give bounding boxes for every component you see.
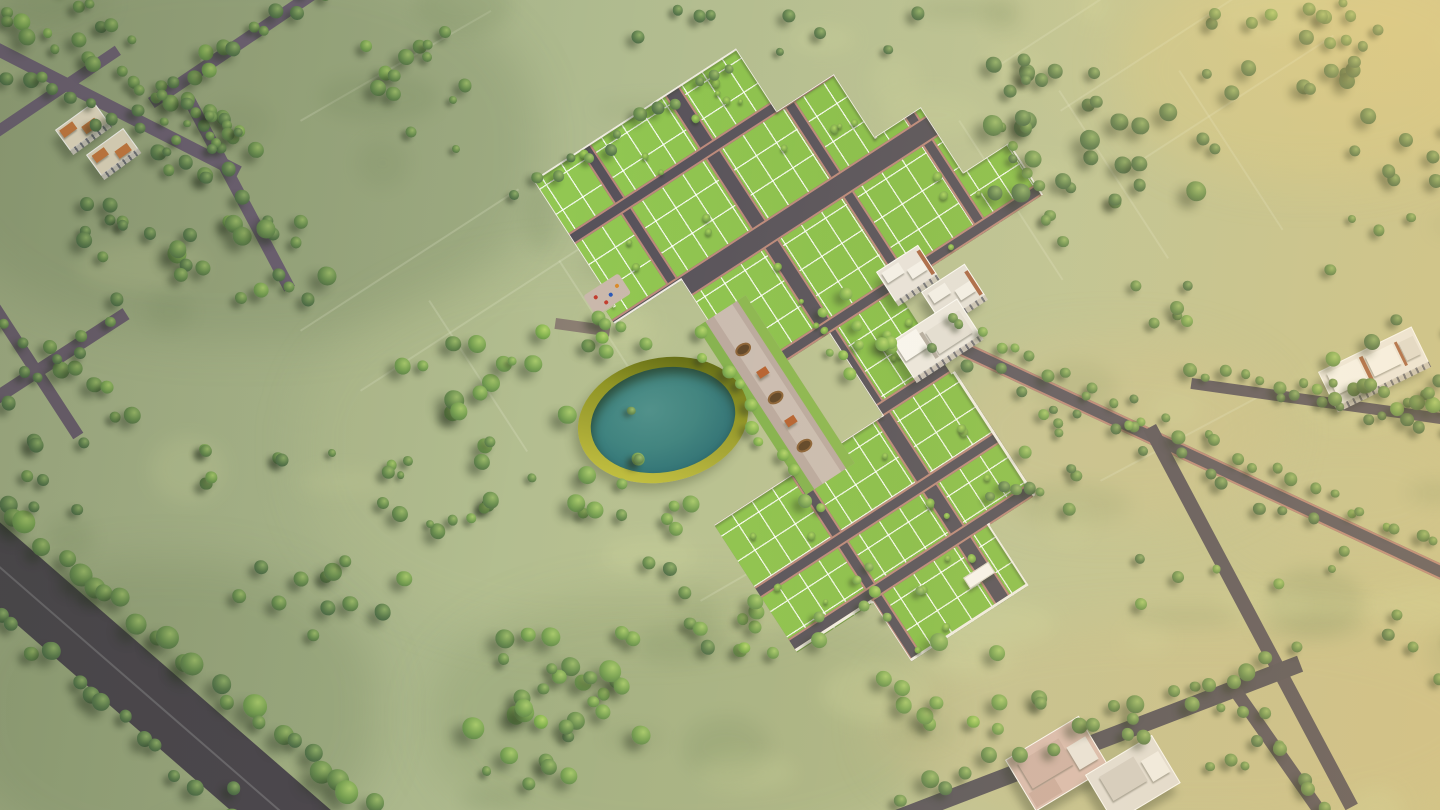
tree — [981, 747, 997, 763]
tree — [1433, 674, 1440, 685]
tree — [1111, 113, 1128, 130]
tree — [406, 127, 417, 138]
tree — [1301, 781, 1315, 795]
tree — [232, 589, 246, 603]
tree — [386, 87, 400, 101]
tree — [144, 227, 156, 239]
tree — [1240, 761, 1249, 770]
tree — [103, 198, 118, 213]
tree — [737, 614, 749, 626]
tree — [21, 471, 33, 483]
tree — [683, 495, 700, 512]
tree — [1023, 351, 1034, 362]
grass-mottle — [1150, 391, 1203, 427]
tree — [32, 538, 50, 556]
tree — [317, 266, 336, 285]
tree — [1212, 564, 1221, 573]
tree — [43, 340, 57, 354]
tree — [954, 319, 964, 329]
tree — [1428, 536, 1437, 545]
tree — [1021, 75, 1031, 85]
play-equipment — [608, 292, 614, 298]
tree — [1406, 213, 1416, 223]
tree — [1132, 117, 1149, 134]
tree — [452, 145, 460, 153]
tree — [335, 780, 359, 804]
tree — [1033, 180, 1045, 192]
tree — [1331, 489, 1340, 498]
tree — [254, 283, 269, 298]
tree — [1272, 462, 1283, 473]
tree — [459, 79, 472, 92]
tree — [1378, 386, 1390, 398]
tree — [81, 197, 95, 211]
tree — [248, 142, 264, 158]
tree — [1328, 392, 1342, 406]
tree — [105, 18, 119, 32]
tree — [1364, 334, 1380, 350]
tree — [1134, 554, 1144, 564]
tree — [1232, 453, 1244, 465]
tree — [1354, 507, 1364, 517]
tree — [1111, 423, 1122, 434]
tree — [119, 710, 132, 723]
tree — [567, 494, 585, 512]
tree — [1382, 629, 1395, 642]
tree — [1274, 381, 1287, 394]
tree — [1425, 397, 1440, 413]
tree — [853, 576, 862, 585]
tree — [248, 21, 259, 32]
tree — [1399, 133, 1413, 147]
tree — [978, 327, 988, 337]
tree — [1255, 376, 1265, 386]
tree — [1019, 446, 1032, 459]
tree — [541, 627, 560, 646]
tree — [859, 601, 870, 612]
tree — [1390, 402, 1404, 416]
tree — [725, 65, 734, 74]
tree — [74, 347, 86, 359]
tree — [110, 412, 121, 423]
grass-mottle — [1433, 216, 1440, 235]
tree — [992, 695, 1007, 710]
tree — [422, 40, 433, 51]
tree — [709, 70, 720, 81]
tree — [19, 366, 31, 378]
tree — [884, 45, 894, 55]
tree — [1251, 735, 1263, 747]
tree — [531, 172, 543, 184]
tree — [663, 562, 677, 576]
tree — [814, 612, 825, 623]
tree — [1138, 446, 1148, 456]
tree — [1011, 747, 1027, 763]
tree — [521, 628, 536, 643]
tree — [1360, 108, 1376, 124]
tree — [782, 10, 795, 23]
tree — [148, 738, 161, 751]
tree — [1114, 156, 1131, 173]
tree — [693, 621, 708, 636]
tree — [1088, 67, 1100, 79]
tree — [883, 613, 892, 622]
tree — [474, 454, 490, 470]
tree — [32, 372, 43, 383]
tree — [1289, 390, 1300, 401]
tree — [1247, 463, 1257, 473]
tree — [894, 680, 910, 696]
tree — [290, 6, 304, 20]
tree — [243, 694, 267, 718]
tree — [1108, 700, 1120, 712]
tree — [95, 584, 112, 601]
tree — [1057, 236, 1069, 248]
tree — [168, 770, 180, 782]
tree — [221, 162, 236, 177]
tree — [222, 127, 235, 140]
tree — [566, 153, 575, 162]
tree — [52, 354, 62, 364]
play-equipment — [603, 300, 609, 306]
tree — [1063, 503, 1076, 516]
tree — [46, 83, 58, 95]
tree — [482, 766, 492, 776]
tree — [1299, 379, 1309, 389]
tree — [101, 380, 114, 393]
tree — [1372, 24, 1383, 35]
tree — [71, 504, 83, 516]
tree — [1004, 85, 1017, 98]
tree — [515, 699, 533, 717]
tree — [1348, 214, 1356, 222]
tree — [508, 356, 517, 365]
tree — [207, 144, 217, 154]
tree — [559, 719, 574, 734]
tree — [449, 96, 457, 104]
tree — [1181, 315, 1193, 327]
tree — [930, 633, 948, 651]
tree — [1413, 421, 1426, 434]
tree — [853, 340, 863, 350]
tree — [171, 136, 181, 146]
tree — [922, 770, 940, 788]
tree — [76, 232, 92, 248]
tree — [865, 563, 874, 572]
tree — [377, 497, 389, 509]
tree — [599, 660, 621, 682]
tree — [160, 117, 169, 126]
tree — [500, 747, 518, 765]
tree — [1265, 9, 1278, 22]
tree — [126, 613, 147, 634]
tree — [156, 626, 178, 648]
tree — [200, 171, 213, 184]
tree — [1205, 762, 1215, 772]
tree — [498, 653, 510, 665]
tree — [596, 331, 609, 344]
tree — [328, 449, 336, 457]
grass-mottle — [913, 0, 1008, 20]
tree — [616, 509, 628, 521]
tree — [1202, 678, 1216, 692]
tree — [1382, 164, 1396, 178]
tree — [1082, 392, 1091, 401]
tree — [198, 45, 213, 60]
tree — [187, 779, 204, 796]
tree — [633, 108, 647, 122]
tree — [987, 186, 1002, 201]
tree — [1041, 370, 1054, 383]
tree — [1185, 697, 1200, 712]
tree — [204, 110, 215, 121]
tree — [1429, 174, 1440, 188]
tree — [75, 331, 87, 343]
roof-block — [1017, 738, 1074, 788]
tree — [670, 99, 681, 110]
tree — [895, 697, 912, 714]
tree — [1329, 379, 1338, 388]
tree — [105, 215, 116, 226]
tree — [495, 629, 514, 648]
roof-block — [59, 121, 77, 138]
tree — [693, 10, 706, 23]
tree — [225, 42, 240, 57]
tree — [87, 98, 97, 108]
tree — [212, 674, 232, 694]
tree — [403, 456, 413, 466]
tree — [105, 113, 118, 126]
grass-mottle — [357, 138, 408, 187]
tree — [777, 449, 789, 461]
tree — [605, 144, 617, 156]
tree — [1183, 280, 1194, 291]
tree — [632, 726, 651, 745]
tree — [269, 3, 284, 18]
tree — [1392, 609, 1403, 620]
tree — [1172, 431, 1185, 444]
roof-block — [1099, 756, 1148, 801]
tree — [227, 781, 241, 795]
tree — [360, 40, 372, 52]
tree — [584, 671, 598, 685]
tree — [651, 102, 664, 115]
tree — [814, 27, 826, 39]
tree — [366, 793, 384, 810]
tree — [1324, 37, 1336, 49]
roof-block — [882, 262, 905, 283]
tree — [616, 478, 627, 489]
tree — [998, 481, 1010, 493]
tree — [340, 556, 352, 568]
tree — [397, 471, 405, 479]
tree — [1325, 352, 1340, 367]
tree — [12, 510, 35, 533]
tree — [599, 318, 611, 330]
aerial-render — [0, 0, 1440, 810]
roof-block — [92, 147, 109, 163]
tree — [276, 454, 289, 467]
tree — [374, 604, 391, 621]
tree — [1312, 384, 1323, 395]
tree — [1238, 663, 1256, 681]
tree — [293, 571, 308, 586]
tree — [1136, 730, 1151, 745]
tree — [468, 335, 486, 353]
tree — [1225, 753, 1238, 766]
tree — [640, 338, 653, 351]
tree — [131, 104, 144, 117]
tree — [744, 398, 757, 411]
tree — [1328, 565, 1336, 573]
tree — [135, 123, 146, 134]
tree — [291, 237, 302, 248]
tree — [1018, 54, 1031, 67]
tree — [669, 501, 680, 512]
tree — [272, 269, 285, 282]
tree — [1008, 141, 1018, 151]
tree — [1072, 410, 1081, 419]
tree — [117, 66, 128, 77]
tree — [788, 464, 800, 476]
tree — [272, 595, 287, 610]
tree — [1304, 83, 1316, 95]
tree — [798, 494, 812, 508]
tree — [1048, 64, 1063, 79]
tree — [1197, 132, 1210, 145]
tree — [302, 293, 315, 306]
tree — [1241, 369, 1251, 379]
tree — [178, 155, 193, 170]
tree — [89, 119, 102, 132]
tree — [1035, 487, 1044, 496]
tree — [202, 63, 217, 78]
tree — [1292, 641, 1303, 652]
tree — [257, 219, 276, 238]
tree — [467, 514, 477, 524]
tree — [324, 563, 342, 581]
tree — [1363, 414, 1375, 426]
tree — [1205, 469, 1216, 480]
tree — [1129, 394, 1138, 403]
tree — [767, 647, 779, 659]
tree — [446, 336, 462, 352]
tree — [1227, 675, 1241, 689]
tree — [825, 348, 834, 357]
tree — [180, 653, 203, 676]
tree — [1364, 378, 1378, 392]
tree — [1010, 484, 1022, 496]
tree — [1159, 103, 1177, 121]
tree — [1024, 151, 1041, 168]
tree — [1035, 73, 1049, 87]
tree — [1015, 110, 1031, 126]
grass-mottle — [460, 790, 525, 806]
tree — [596, 704, 611, 719]
tree — [631, 30, 644, 43]
tree — [183, 228, 197, 242]
tree — [342, 596, 357, 611]
tree — [584, 153, 594, 163]
tree — [1209, 8, 1221, 20]
tree — [392, 506, 408, 522]
tree — [64, 91, 77, 104]
tree — [1041, 215, 1051, 225]
play-equipment — [593, 294, 599, 300]
tree — [394, 358, 411, 375]
tree — [1148, 318, 1159, 329]
tree — [1083, 150, 1098, 165]
tree — [1055, 173, 1071, 189]
tree — [29, 501, 40, 512]
grass-mottle — [149, 436, 226, 503]
tree — [553, 170, 565, 182]
tree — [183, 120, 191, 128]
tree — [1325, 264, 1336, 275]
tree — [528, 474, 537, 483]
tree — [1012, 184, 1031, 203]
tree — [1408, 642, 1419, 653]
tree — [817, 307, 828, 318]
tree — [85, 0, 94, 9]
tree — [958, 767, 971, 780]
tree — [1317, 396, 1328, 407]
tree — [206, 132, 215, 141]
tree — [541, 758, 557, 774]
tree — [586, 501, 603, 518]
tree — [1053, 418, 1063, 428]
tree — [983, 115, 1003, 135]
tree — [92, 693, 110, 711]
tree — [426, 521, 434, 529]
tree — [1170, 301, 1184, 315]
tree — [447, 515, 458, 526]
tree — [195, 261, 210, 276]
tree — [439, 26, 451, 38]
tree — [1080, 130, 1100, 150]
tree — [1258, 651, 1272, 665]
tree — [1022, 168, 1033, 179]
tree — [29, 437, 44, 452]
tree — [776, 48, 784, 56]
tree — [1, 396, 16, 411]
tree — [1273, 742, 1287, 756]
tree — [398, 49, 414, 65]
tree — [1186, 181, 1206, 201]
grass-mottle — [1079, 0, 1111, 23]
play-equipment — [614, 283, 620, 289]
tree — [1109, 193, 1122, 206]
tree — [283, 281, 294, 292]
tree — [1034, 697, 1047, 710]
tree — [1339, 546, 1350, 557]
tree — [1172, 571, 1184, 583]
tree — [1183, 363, 1197, 377]
tree — [911, 7, 924, 20]
tree — [1201, 373, 1210, 382]
tree — [18, 28, 35, 45]
tree — [695, 326, 708, 339]
tree — [1038, 409, 1050, 421]
grass-mottle — [146, 293, 193, 330]
tree — [927, 343, 937, 353]
tree — [234, 128, 243, 137]
tree — [111, 588, 130, 607]
tree — [181, 97, 194, 110]
tree — [235, 190, 250, 205]
tree — [989, 645, 1005, 661]
tree — [1130, 280, 1141, 291]
